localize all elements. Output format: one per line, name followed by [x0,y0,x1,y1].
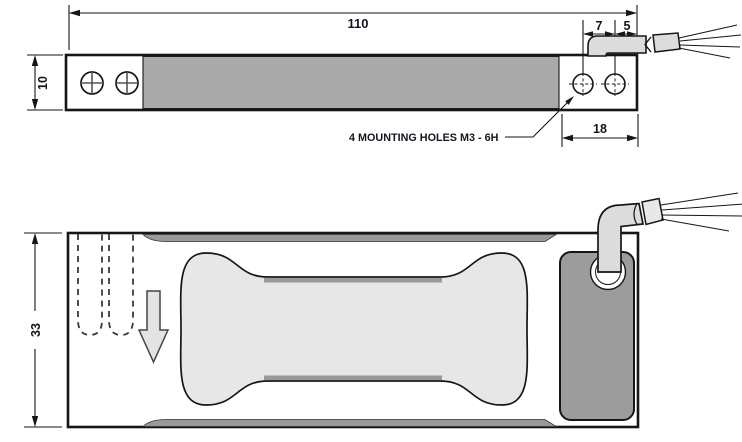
edge-strip-top [143,235,556,242]
edge-strip-bottom [143,420,556,427]
mounting-screw-left [81,72,103,94]
load-cell-drawing: 110 10 [0,0,742,442]
arrowhead-10-bottom [32,99,38,110]
dimension-label-110: 110 [348,16,369,31]
cable-elbow-side [588,36,646,56]
wire [680,45,740,47]
plan-view: 33 [24,193,742,427]
wire [661,219,729,231]
arrowhead-33-bottom [32,416,38,427]
wire [679,48,730,58]
arrowhead-18-right [627,135,638,141]
cable-sleeve-side [653,33,680,52]
cable-sleeve-plan [642,199,663,225]
mounting-holes-note: 4 MOUNTING HOLES M3 - 6H [349,132,499,144]
dimension-label-5: 5 [624,19,631,33]
wire [662,204,742,210]
wire-leads-side [679,25,741,58]
arrowhead-10-top [32,55,38,66]
pocket-edge-bottom [264,376,442,381]
arrowhead-7-left [583,31,593,37]
wire-leads-plan [661,193,742,231]
dimension-label-33: 33 [29,323,43,337]
mounting-screw-right [116,72,138,94]
dimension-label-18: 18 [593,122,607,136]
side-view-center-section [143,56,559,108]
arrowhead-18-left [562,135,573,141]
wire [662,215,742,216]
arrowhead-33-top [32,233,38,244]
arrowhead-110-left [69,10,80,16]
wire [661,193,738,205]
dimension-label-10: 10 [36,76,50,90]
pocket-edge-top [264,278,442,283]
arrowhead-110-right [626,10,637,16]
side-view: 110 10 [27,5,741,147]
dimension-label-7: 7 [596,19,603,33]
technical-drawing-page: 110 10 [0,0,742,442]
